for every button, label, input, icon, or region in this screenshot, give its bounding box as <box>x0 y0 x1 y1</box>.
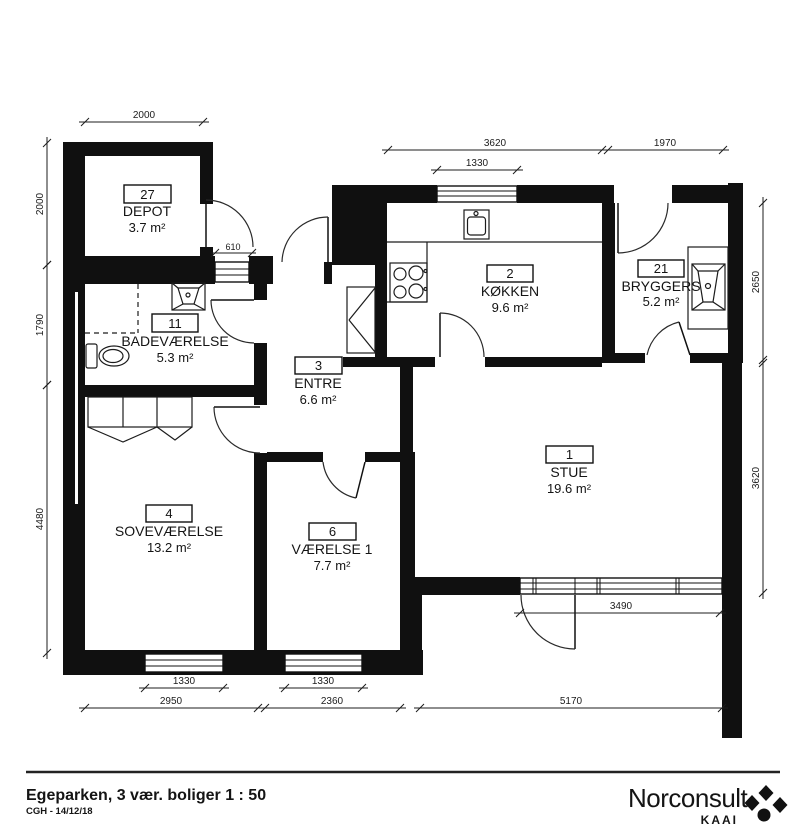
room-label-kitchen: 2 KØKKEN 9.6 m² <box>481 265 539 315</box>
room-area: 5.3 m² <box>157 350 195 365</box>
svg-text:1330: 1330 <box>466 158 489 169</box>
svg-text:5170: 5170 <box>560 696 583 707</box>
room-label-bedroom: 4 SOVEVÆRELSE 13.2 m² <box>115 505 223 555</box>
window-room1 <box>285 654 362 672</box>
dim-bottom-livingroom: 5170 <box>414 696 728 712</box>
kitchen-sink <box>464 210 489 239</box>
room-name: KØKKEN <box>481 283 539 299</box>
room-number: 4 <box>165 506 172 521</box>
footer: Egeparken, 3 vær. boliger 1 : 50 CGH - 1… <box>26 772 788 827</box>
room-area: 13.2 m² <box>147 540 192 555</box>
dim-bottom-bedroom: 2950 <box>79 696 264 712</box>
door-room1 <box>323 462 365 498</box>
door-bedroom <box>214 407 260 453</box>
floor-plan-sheet: 27 DEPOT 3.7 m² 11 BADEVÆRELSE 5.3 m² 3 … <box>0 0 800 840</box>
dim-livingroom-windows: 3490 <box>514 601 726 617</box>
door-terrace <box>521 595 575 649</box>
room-number: 1 <box>566 447 573 462</box>
dim-bottom-room1: 2360 <box>259 696 406 712</box>
dim-bedroom-window: 1330 <box>139 676 229 692</box>
svg-text:1330: 1330 <box>312 676 335 687</box>
room-area: 6.6 m² <box>300 392 338 407</box>
svg-text:2650: 2650 <box>751 270 762 293</box>
dim-top-kitchen: 3620 <box>382 138 608 154</box>
svg-text:4480: 4480 <box>35 507 46 530</box>
brand-logo: Norconsult KAAI <box>628 783 788 827</box>
dim-left-bedroom: 4480 <box>35 379 51 659</box>
room-label-entre: 3 ENTRE 6.6 m² <box>294 357 342 407</box>
wardrobe <box>88 397 192 442</box>
washer-reservation-dashed <box>85 284 138 333</box>
room-name: SOVEVÆRELSE <box>115 523 223 539</box>
room-name: DEPOT <box>123 203 172 219</box>
svg-text:610: 610 <box>225 242 240 252</box>
room-name: BRYGGERS <box>621 278 700 294</box>
bathroom-sink <box>172 283 205 310</box>
room-area: 5.2 m² <box>643 294 681 309</box>
dim-right-bryggers: 2650 <box>751 197 767 366</box>
door-bryggers-entrance <box>618 203 668 253</box>
room-area: 19.6 m² <box>547 481 592 496</box>
window-entrance <box>215 262 249 282</box>
door-depot <box>206 200 253 247</box>
room-label-bryggers: 21 BRYGGERS 5.2 m² <box>621 260 700 309</box>
room-number: 27 <box>140 187 154 202</box>
norconsult-diamonds-icon <box>745 785 788 822</box>
window-band-livingroom <box>520 578 722 594</box>
room-area: 3.7 m² <box>129 220 167 235</box>
room-number: 2 <box>506 266 513 281</box>
window-kitchen <box>437 186 517 202</box>
svg-text:1970: 1970 <box>654 138 677 149</box>
room-area: 7.7 m² <box>314 558 352 573</box>
door-bryggers-livingroom <box>647 322 690 355</box>
stove <box>390 263 427 302</box>
brand-sub-wordmark: KAAI <box>701 813 738 827</box>
svg-text:2000: 2000 <box>35 192 46 215</box>
room-number: 3 <box>315 358 322 373</box>
room-name: BADEVÆRELSE <box>121 333 228 349</box>
svg-text:3620: 3620 <box>484 138 507 149</box>
room-name: ENTRE <box>294 375 341 391</box>
room-area: 9.6 m² <box>492 300 530 315</box>
sheet-title: Egeparken, 3 vær. boliger 1 : 50 <box>26 787 266 804</box>
dim-top-depot: 2000 <box>79 110 209 126</box>
svg-text:3620: 3620 <box>751 466 762 489</box>
svg-text:1790: 1790 <box>35 313 46 336</box>
room-label-livingroom: 1 STUE 19.6 m² <box>546 446 593 496</box>
dim-entrance-window: 610 <box>211 242 256 257</box>
dim-left-depot: 2000 <box>35 137 51 271</box>
windows <box>145 186 722 672</box>
dim-top-bryggers: 1970 <box>602 138 729 154</box>
brand-wordmark: Norconsult <box>628 783 749 813</box>
hall-closet <box>347 287 375 353</box>
room-number: 11 <box>168 316 182 331</box>
room-label-depot: 27 DEPOT 3.7 m² <box>123 185 172 235</box>
window-bedroom <box>145 654 223 672</box>
room-name: STUE <box>550 464 587 480</box>
svg-text:2360: 2360 <box>321 696 344 707</box>
svg-text:3490: 3490 <box>610 601 633 612</box>
room-number: 21 <box>654 261 668 276</box>
svg-text:1330: 1330 <box>173 676 196 687</box>
room-number: 6 <box>329 524 336 539</box>
floor-plan-drawing: 27 DEPOT 3.7 m² 11 BADEVÆRELSE 5.3 m² 3 … <box>0 0 800 840</box>
door-kitchen-livingroom <box>440 313 484 357</box>
dim-left-bath: 1790 <box>35 259 51 391</box>
svg-text:2000: 2000 <box>133 110 156 121</box>
svg-text:2950: 2950 <box>160 696 183 707</box>
door-front-entrance <box>282 217 328 262</box>
dim-room1-window: 1330 <box>279 676 368 692</box>
dim-kitchen-window: 1330 <box>431 158 523 174</box>
sheet-credit: CGH - 14/12/18 <box>26 806 93 817</box>
room-name: VÆRELSE 1 <box>292 541 373 557</box>
dim-right-livingroom: 3620 <box>751 357 767 599</box>
room-label-room1: 6 VÆRELSE 1 7.7 m² <box>292 523 373 573</box>
